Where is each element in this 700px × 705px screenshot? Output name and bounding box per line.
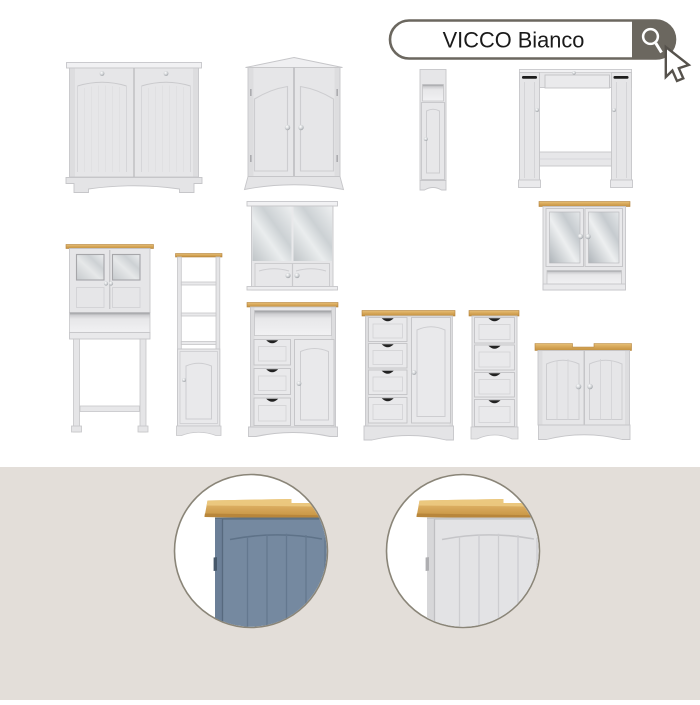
svg-text:VICCO Bianco: VICCO Bianco	[443, 28, 585, 53]
